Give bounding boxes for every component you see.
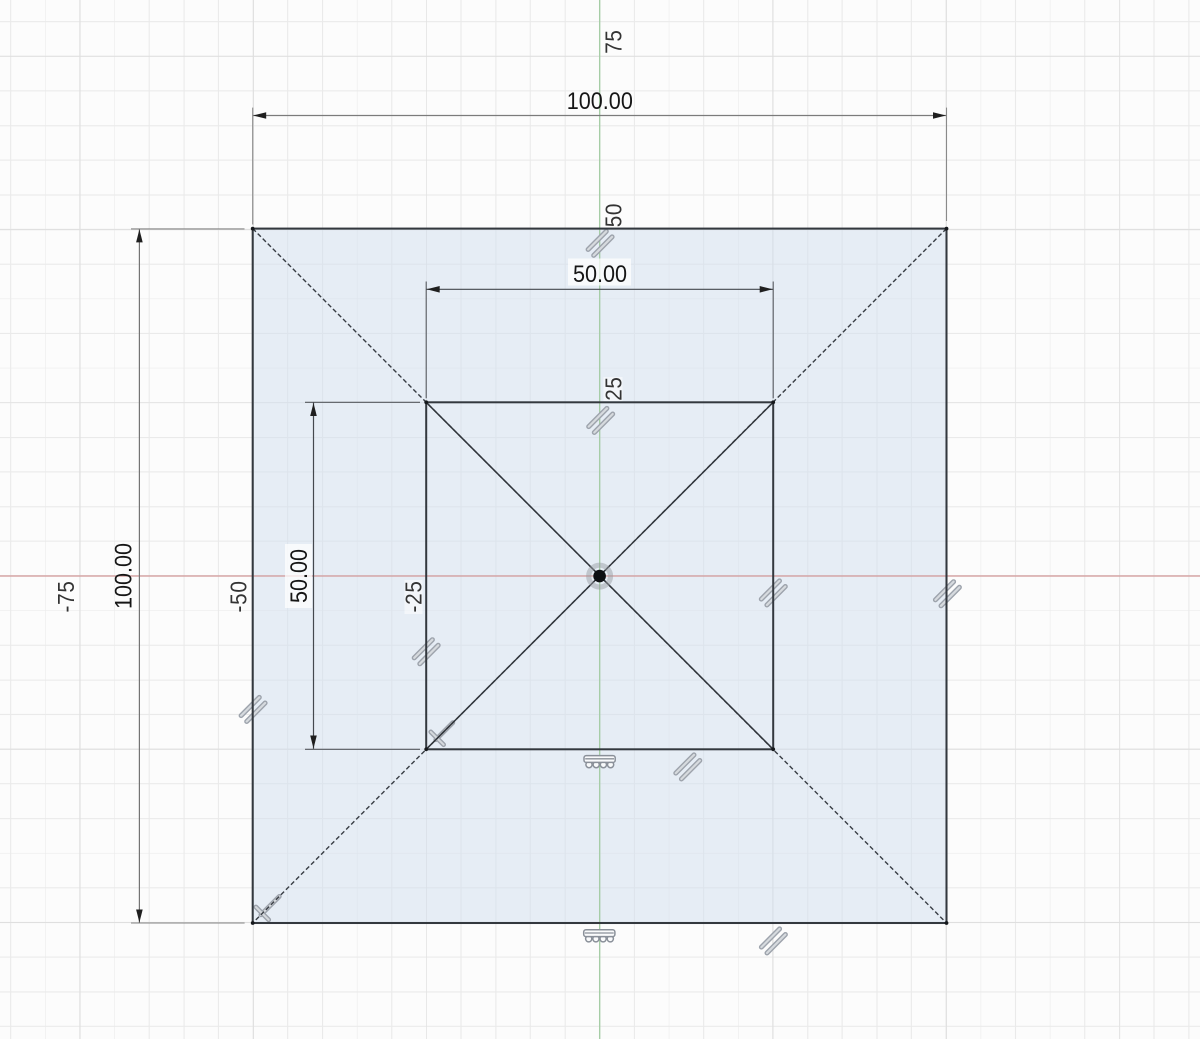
svg-text:25: 25 [600,376,626,400]
svg-text:100.00: 100.00 [110,543,137,609]
svg-text:-25: -25 [400,580,426,612]
svg-text:50.00: 50.00 [285,549,312,603]
svg-text:50.00: 50.00 [573,260,627,287]
svg-text:-75: -75 [53,580,79,612]
svg-text:-50: -50 [226,580,252,612]
svg-text:75: 75 [600,29,626,53]
svg-text:50: 50 [600,203,626,227]
svg-text:100.00: 100.00 [567,87,633,114]
